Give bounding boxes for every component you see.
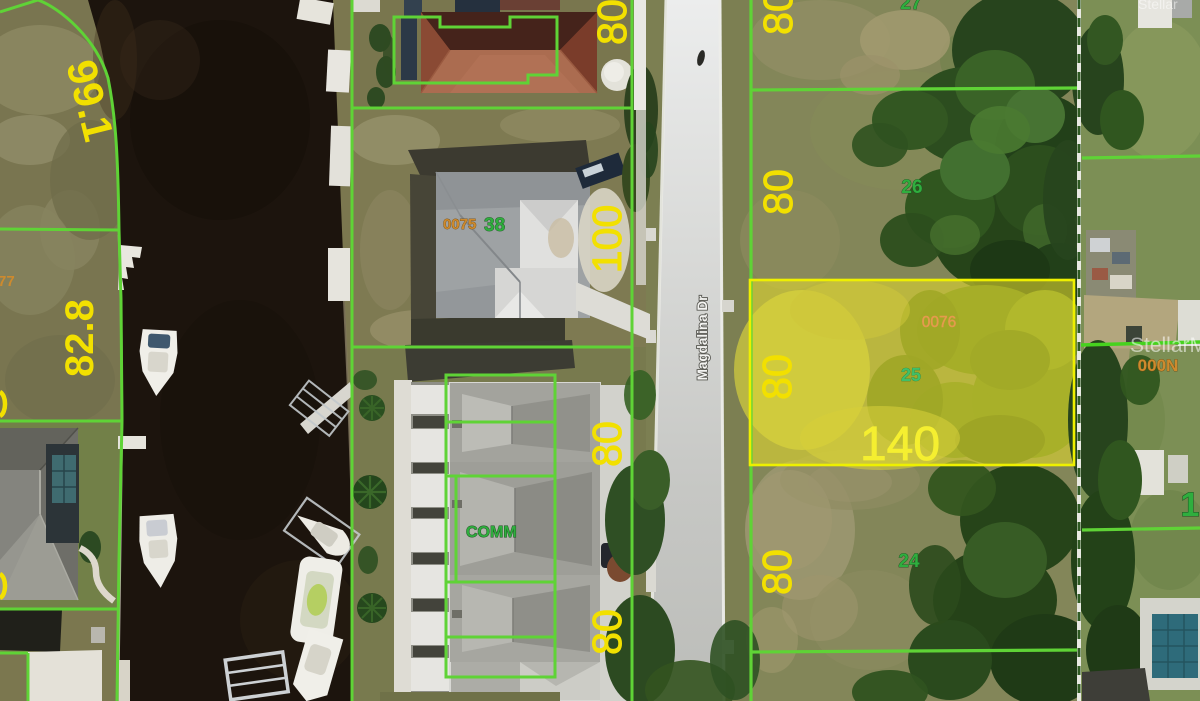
svg-text:0076: 0076 bbox=[922, 314, 956, 331]
svg-text:38: 38 bbox=[484, 215, 505, 236]
svg-text:26: 26 bbox=[901, 177, 922, 198]
svg-text:StellarM: StellarM bbox=[1130, 334, 1200, 357]
svg-text:80: 80 bbox=[754, 549, 800, 595]
svg-text:100: 100 bbox=[584, 205, 630, 273]
svg-text:27: 27 bbox=[900, 0, 921, 14]
svg-text:80: 80 bbox=[584, 421, 630, 467]
svg-text:140: 140 bbox=[860, 418, 940, 471]
svg-text:80: 80 bbox=[754, 354, 800, 400]
svg-text:80: 80 bbox=[584, 609, 630, 655]
svg-text:80: 80 bbox=[755, 169, 801, 215]
svg-text:77: 77 bbox=[0, 273, 15, 290]
svg-text:Magdalina Dr: Magdalina Dr bbox=[695, 295, 710, 381]
svg-text:Stellar: Stellar bbox=[1138, 0, 1178, 12]
svg-text:000N: 000N bbox=[1138, 356, 1179, 375]
svg-text:24: 24 bbox=[898, 551, 920, 572]
svg-text:82.8: 82.8 bbox=[58, 299, 102, 377]
svg-text:80: 80 bbox=[755, 0, 801, 35]
svg-text:25: 25 bbox=[901, 365, 921, 385]
svg-text:0075: 0075 bbox=[443, 216, 476, 233]
svg-text:COMM: COMM bbox=[466, 524, 517, 541]
svg-text:1: 1 bbox=[1181, 486, 1200, 524]
svg-text:80: 80 bbox=[589, 0, 635, 45]
